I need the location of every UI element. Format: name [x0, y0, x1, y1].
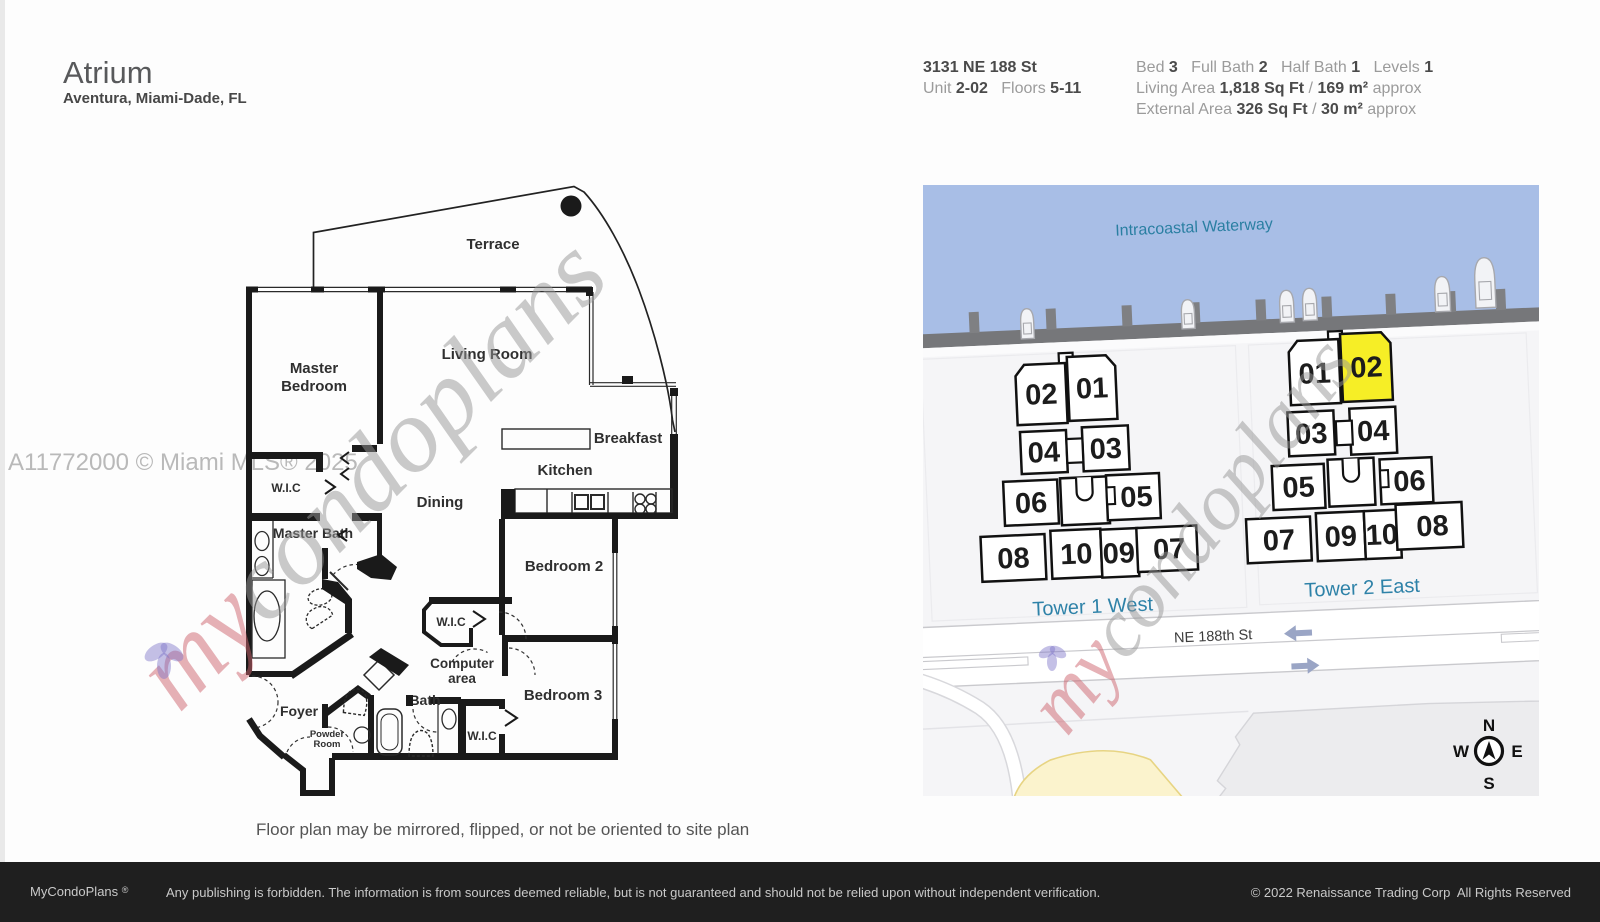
svg-text:mycondoplans: mycondoplans — [112, 215, 628, 731]
